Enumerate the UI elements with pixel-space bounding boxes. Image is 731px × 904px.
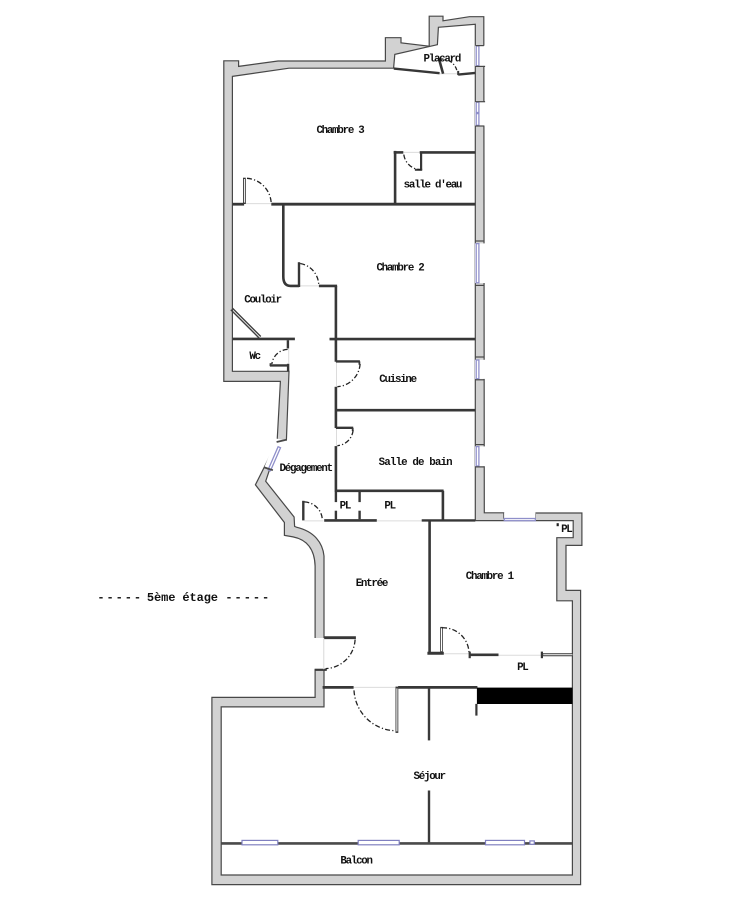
svg-text:PL: PL (561, 524, 572, 536)
svg-text:salle d'eau: salle d'eau (404, 180, 462, 192)
svg-text:PL: PL (340, 501, 351, 513)
svg-text:Salle de bain: Salle de bain (379, 457, 453, 469)
svg-text:Séjour: Séjour (414, 771, 446, 783)
svg-text:Cuisine: Cuisine (379, 374, 416, 386)
svg-text:Dégagement: Dégagement (280, 463, 333, 475)
svg-text:PL: PL (384, 501, 395, 513)
svg-text:-----: ----- (97, 591, 143, 605)
svg-text:Chambre 2: Chambre 2 (376, 263, 424, 275)
svg-text:Placard: Placard (423, 53, 460, 65)
svg-text:PL: PL (517, 662, 528, 674)
svg-text:Wc: Wc (249, 351, 260, 363)
svg-text:Balcon: Balcon (340, 856, 372, 868)
svg-text:Couloir: Couloir (244, 295, 281, 307)
svg-text:Entrée: Entrée (356, 578, 388, 590)
svg-text:-----: ----- (225, 591, 271, 605)
svg-text:Chambre 1: Chambre 1 (466, 571, 515, 583)
svg-text:Chambre 3: Chambre 3 (316, 125, 364, 137)
svg-text:5ème étage: 5ème étage (147, 591, 218, 605)
